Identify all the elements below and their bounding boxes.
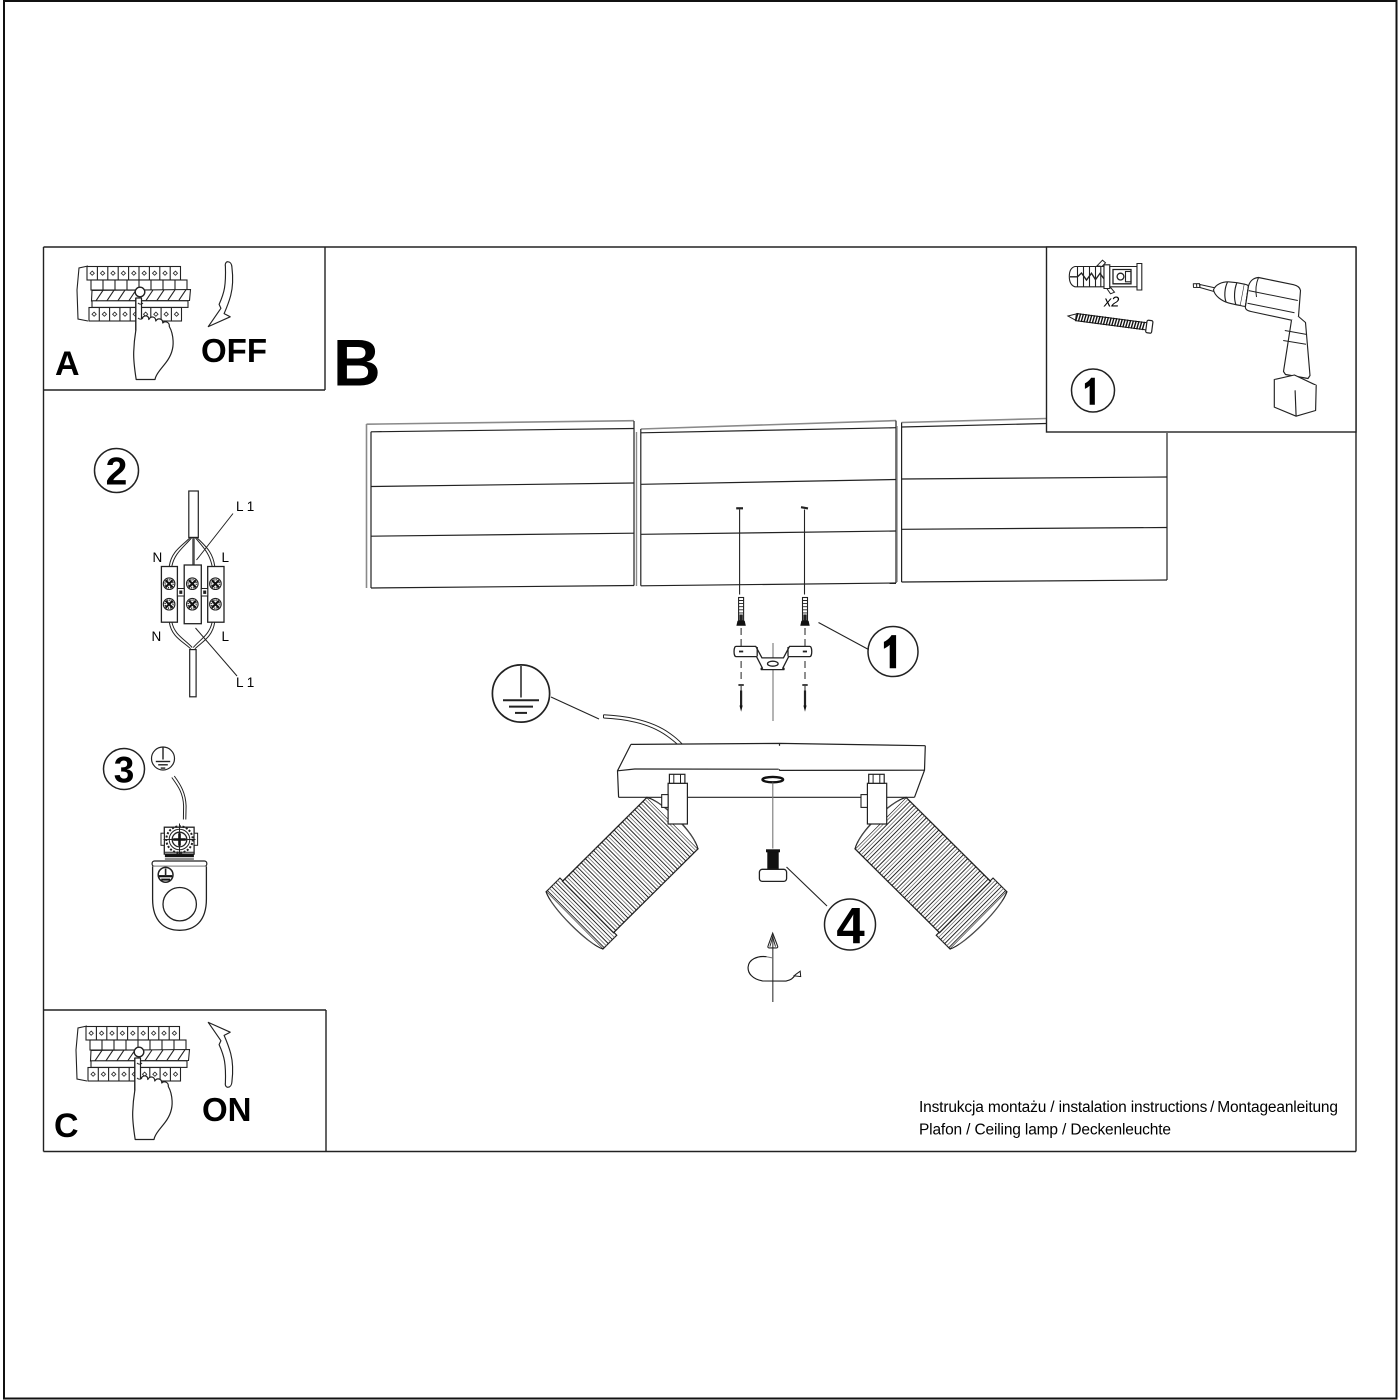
- svg-text:L 1: L 1: [236, 675, 254, 690]
- svg-text:OFF: OFF: [201, 332, 267, 369]
- svg-text:ON: ON: [202, 1091, 252, 1128]
- svg-text:L: L: [222, 629, 230, 644]
- svg-text:Instrukcja montażu / instalati: Instrukcja montażu / instalation instruc…: [919, 1099, 1338, 1116]
- svg-text:4: 4: [836, 897, 865, 954]
- svg-text:3: 3: [114, 750, 135, 791]
- svg-text:N: N: [153, 550, 163, 565]
- svg-text:C: C: [54, 1107, 79, 1145]
- svg-text:x2: x2: [1103, 295, 1119, 311]
- svg-text:A: A: [55, 345, 80, 383]
- svg-text:L 1: L 1: [236, 499, 254, 514]
- svg-text:2: 2: [106, 451, 128, 494]
- svg-text:L: L: [222, 550, 230, 565]
- svg-text:B: B: [333, 326, 381, 400]
- svg-text:N: N: [152, 629, 162, 644]
- svg-text:Plafon / Ceiling lamp / Decken: Plafon / Ceiling lamp / Deckenleuchte: [919, 1122, 1171, 1139]
